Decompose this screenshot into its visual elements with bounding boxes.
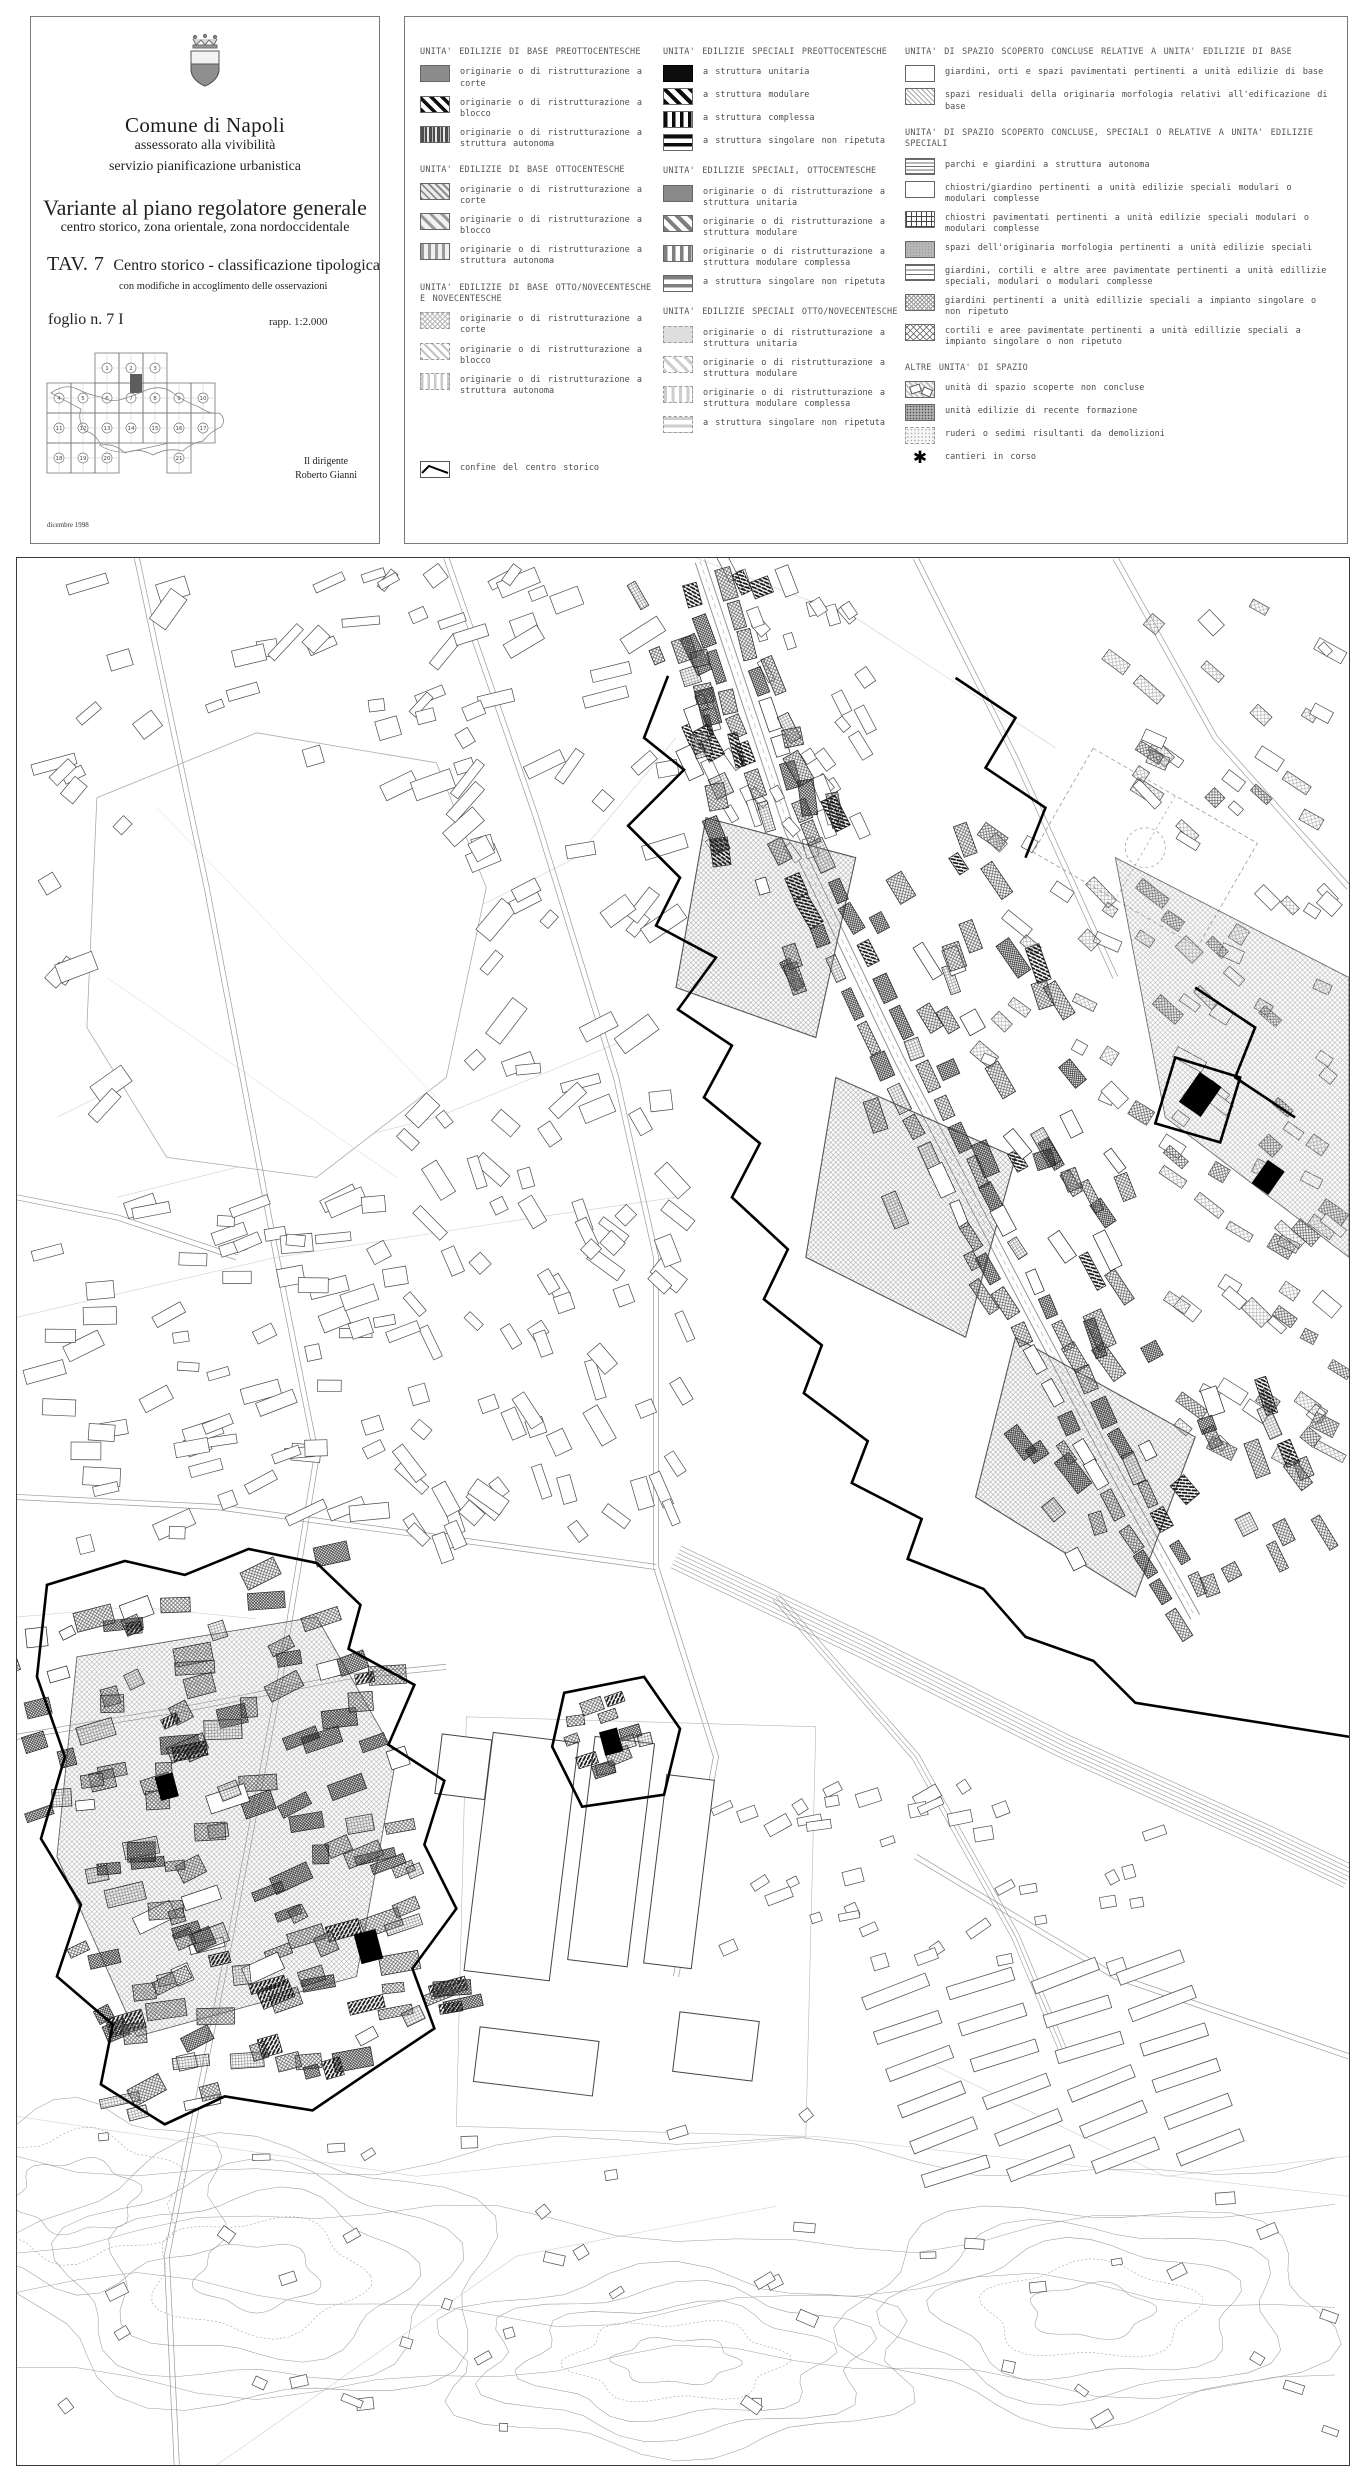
legend-group-title: UNITA' EDILIZIE DI BASE OTTOCENTESCHE xyxy=(420,165,655,176)
dots-light-swatch-icon xyxy=(905,427,935,444)
hlines-wide-swatch-icon xyxy=(905,264,935,281)
vertical-light-swatch-icon xyxy=(420,373,450,390)
legend-item: giardini pertinenti a unità edillizie sp… xyxy=(905,294,1337,318)
legend-group: UNITA' DI SPAZIO SCOPERTO CONCLUSE RELAT… xyxy=(905,47,1337,113)
legend-item-label: giardini, orti e spazi pavimentati perti… xyxy=(945,65,1323,78)
legend-item: a struttura singolare non ripetuta xyxy=(663,134,898,151)
legend-item-label: ruderi o sedimi risultanti da demolizion… xyxy=(945,427,1165,440)
diagonal-fine-gray-swatch-icon xyxy=(420,183,450,200)
map-sketch-swatch-icon xyxy=(905,381,935,398)
hlines-fine-swatch-icon xyxy=(905,158,935,175)
svg-text:21: 21 xyxy=(176,456,183,462)
legend-panel: UNITA' EDILIZIE DI BASE PREOTTOCENTESCHE… xyxy=(404,16,1348,544)
legend-item-label: giardini pertinenti a unità edillizie sp… xyxy=(945,294,1337,318)
legend-item: giardini, orti e spazi pavimentati perti… xyxy=(905,65,1337,82)
legend-item: a struttura complessa xyxy=(663,111,898,128)
legend-item: spazi dell'originaria morfologia pertine… xyxy=(905,241,1337,258)
map-canvas xyxy=(17,558,1349,2465)
svg-text:17: 17 xyxy=(200,426,207,432)
legend-item-label: giardini, cortili e altre aree pavimenta… xyxy=(945,264,1337,288)
legend-item: a struttura modulare xyxy=(663,88,898,105)
legend-item-label: originarie o di ristrutturazione a strut… xyxy=(460,243,655,267)
signature-block: Il dirigente Roberto Gianni xyxy=(295,455,357,483)
asterisk-swatch-icon: ✱ xyxy=(905,450,935,467)
legend-group: UNITA' EDILIZIE DI BASE PREOTTOCENTESCHE… xyxy=(420,47,655,150)
horizontal-black-swatch-icon xyxy=(663,134,693,151)
grid-dense-gray-swatch-icon xyxy=(905,181,935,198)
legend-item-label: unità di spazio scoperte non concluse xyxy=(945,381,1144,394)
legend-item-label: parchi e giardini a struttura autonoma xyxy=(945,158,1149,171)
diagonal-light-swatch-icon xyxy=(420,343,450,360)
legend-item: originarie o di ristrutturazione a strut… xyxy=(420,373,655,397)
legend-item-label: originarie o di ristrutturazione a strut… xyxy=(703,185,898,209)
svg-text:19: 19 xyxy=(80,456,87,462)
signature-role: Il dirigente xyxy=(295,455,357,469)
legend-columns: UNITA' EDILIZIE DI BASE PREOTTOCENTESCHE… xyxy=(405,17,1347,543)
horizontal-gray-swatch-icon xyxy=(663,275,693,292)
legend-item-label: originarie o di ristrutturazione a strut… xyxy=(703,215,898,239)
legend-column-3: UNITA' DI SPAZIO SCOPERTO CONCLUSE RELAT… xyxy=(905,47,1337,473)
scale-label: rapp. 1:2.000 xyxy=(269,316,327,328)
legend-item-label: confine del centro storico xyxy=(460,461,599,474)
legend-item: unità edilizie di recente formazione xyxy=(905,404,1337,421)
svg-text:10: 10 xyxy=(200,396,207,402)
svg-text:15: 15 xyxy=(152,426,159,432)
legend-item: originarie o di ristrutturazione a blocc… xyxy=(420,213,655,237)
map-area xyxy=(16,557,1350,2466)
sheet-note: con modifiche in accoglimento delle osse… xyxy=(119,281,327,292)
legend-item-label: originarie o di ristrutturazione a strut… xyxy=(703,326,898,350)
legend-item-label: originarie o di ristrutturazione a strut… xyxy=(460,126,655,150)
sheet-title: Centro storico - classificazione tipolog… xyxy=(113,257,380,274)
legend-item-label: a struttura singolare non ripetuta xyxy=(703,416,885,429)
legend-item: cortili e aree pavimentate pertinenti a … xyxy=(905,324,1337,348)
legend-group-title: UNITA' EDILIZIE DI BASE OTTO/NOVECENTESC… xyxy=(420,283,655,306)
boundary-line-swatch-icon xyxy=(420,461,450,478)
municipality-title: Comune di Napoli xyxy=(31,113,379,138)
legend-item-label: originarie o di ristrutturazione a strut… xyxy=(703,386,898,410)
diamond-fine-swatch-icon xyxy=(905,294,935,311)
legend-group-title: UNITA' DI SPAZIO SCOPERTO CONCLUSE, SPEC… xyxy=(905,128,1337,151)
legend-item-label: originarie o di ristrutturazione a corte xyxy=(460,65,655,89)
coat-of-arms xyxy=(31,33,379,104)
horizontal-light-dashed-swatch-icon xyxy=(663,416,693,433)
diagonal-fine-light-swatch-icon xyxy=(905,88,935,105)
legend-item-label: originarie o di ristrutturazione a blocc… xyxy=(460,343,655,367)
legend-item: originarie o di ristrutturazione a strut… xyxy=(663,326,898,350)
svg-text:16: 16 xyxy=(176,426,183,432)
legend-item: chiostri pavimentati pertinenti a unità … xyxy=(905,211,1337,235)
legend-item-label: chiostri/giardino pertinenti a unità edi… xyxy=(945,181,1337,205)
legend-item-label: spazi residuali della originaria morfolo… xyxy=(945,88,1337,112)
legend-item-label: spazi dell'originaria morfologia pertine… xyxy=(945,241,1312,254)
legend-item: unità di spazio scoperte non concluse xyxy=(905,381,1337,398)
solid-gray-swatch-icon xyxy=(663,185,693,202)
vertical-gray-bold-swatch-icon xyxy=(663,245,693,262)
diagonal-gray-bold-swatch-icon xyxy=(663,215,693,232)
legend-group: UNITA' EDILIZIE SPECIALI PREOTTOCENTESCH… xyxy=(663,47,898,151)
legend-item-label: chiostri pavimentati pertinenti a unità … xyxy=(945,211,1337,235)
legend-item: a struttura singolare non ripetuta xyxy=(663,275,898,292)
legend-item-label: a struttura singolare non ripetuta xyxy=(703,275,885,288)
crosshatch-dark-gray-swatch-icon xyxy=(420,65,450,82)
legend-item-label: originarie o di ristrutturazione a strut… xyxy=(460,373,655,397)
legend-item-label: a struttura modulare xyxy=(703,88,809,101)
svg-text:18: 18 xyxy=(56,456,63,462)
legend-item: giardini, cortili e altre aree pavimenta… xyxy=(905,264,1337,288)
legend-item: originarie o di ristrutturazione a strut… xyxy=(663,185,898,209)
legend-group: ALTRE UNITA' DI SPAZIOunità di spazio sc… xyxy=(905,363,1337,467)
legend-item-label: originarie o di ristrutturazione a blocc… xyxy=(460,96,655,120)
vertical-dark-gray-swatch-icon xyxy=(420,126,450,143)
legend-group-title: UNITA' EDILIZIE SPECIALI, OTTOCENTESCHE xyxy=(663,166,898,177)
svg-text:13: 13 xyxy=(104,426,111,432)
vertical-black-swatch-icon xyxy=(663,111,693,128)
legend-item-label: a struttura unitaria xyxy=(703,65,809,78)
legend-item: originarie o di ristrutturazione a blocc… xyxy=(420,343,655,367)
sheet-title-row: TAV. 7Centro storico - classificazione t… xyxy=(47,253,380,276)
legend-item-label: originarie o di ristrutturazione a blocc… xyxy=(460,213,655,237)
svg-text:11: 11 xyxy=(56,426,63,432)
legend-item-label: originarie o di ristrutturazione a strut… xyxy=(703,245,898,269)
legend-item: ruderi o sedimi risultanti da demolizion… xyxy=(905,427,1337,444)
legend-item-label: a struttura singolare non ripetuta xyxy=(703,134,885,147)
legend-item: parchi e giardini a struttura autonoma xyxy=(905,158,1337,175)
sheet-number: TAV. 7 xyxy=(47,253,104,275)
legend-item: originarie o di ristrutturazione a corte xyxy=(420,65,655,89)
legend-group-title: UNITA' EDILIZIE DI BASE PREOTTOCENTESCHE xyxy=(420,47,655,58)
legend-item: originarie o di ristrutturazione a blocc… xyxy=(420,96,655,120)
legend-group-title: UNITA' EDILIZIE SPECIALI PREOTTOCENTESCH… xyxy=(663,47,898,58)
legend-group-title: UNITA' DI SPAZIO SCOPERTO CONCLUSE RELAT… xyxy=(905,47,1337,58)
legend-item: originarie o di ristrutturazione a strut… xyxy=(663,215,898,239)
vertical-light-dashed-swatch-icon xyxy=(663,386,693,403)
legend-item: originarie o di ristrutturazione a strut… xyxy=(663,356,898,380)
plan-sheet: { "title_block": { "municipality": "Comu… xyxy=(0,0,1366,2480)
legend-item: spazi residuali della originaria morfolo… xyxy=(905,88,1337,112)
legend-item-label: unità edilizie di recente formazione xyxy=(945,404,1137,417)
legend-group: UNITA' EDILIZIE SPECIALI, OTTOCENTESCHEo… xyxy=(663,166,898,292)
sheet-index-map: 123456789101112131415161718192021 xyxy=(41,345,231,495)
diagonal-black-swatch-icon xyxy=(420,96,450,113)
grid-open-swatch-icon xyxy=(905,211,935,228)
legend-group: UNITA' EDILIZIE DI BASE OTTOCENTESCHEori… xyxy=(420,165,655,268)
plan-subtitle: centro storico, zona orientale, zona nor… xyxy=(31,220,379,236)
legend-item-label: originarie o di ristrutturazione a corte xyxy=(460,183,655,207)
legend-item-label: originarie o di ristrutturazione a strut… xyxy=(703,356,898,380)
legend-group: UNITA' DI SPAZIO SCOPERTO CONCLUSE, SPEC… xyxy=(905,128,1337,348)
legend-column-2: UNITA' EDILIZIE SPECIALI PREOTTOCENTESCH… xyxy=(663,47,898,439)
plan-title: Variante al piano regolatore generale xyxy=(31,195,379,221)
diagonal-gray-swatch-icon xyxy=(420,213,450,230)
svg-text:8: 8 xyxy=(153,396,157,402)
legend-item: chiostri/giardino pertinenti a unità edi… xyxy=(905,181,1337,205)
legend-group-title: UNITA' EDILIZIE SPECIALI OTTO/NOVECENTES… xyxy=(663,307,898,318)
vertical-gray-swatch-icon xyxy=(420,243,450,260)
department-label: assessorato alla vivibilità xyxy=(31,138,379,154)
legend-item: originarie o di ristrutturazione a corte xyxy=(420,312,655,336)
legend-item: originarie o di ristrutturazione a strut… xyxy=(663,386,898,410)
crosshatch-light-swatch-icon xyxy=(420,312,450,329)
legend-item: ✱cantieri in corso xyxy=(905,450,1337,467)
svg-text:14: 14 xyxy=(128,426,135,432)
diagonal-black-bold-swatch-icon xyxy=(663,88,693,105)
svg-text:1: 1 xyxy=(105,366,109,372)
legend-item: originarie o di ristrutturazione a strut… xyxy=(663,245,898,269)
legend-item: originarie o di ristrutturazione a corte xyxy=(420,183,655,207)
date-label: dicembre 1998 xyxy=(47,521,89,529)
legend-item-label: cortili e aree pavimentate pertinenti a … xyxy=(945,324,1337,348)
legend-item: a struttura unitaria xyxy=(663,65,898,82)
highlighted-sheet-cell xyxy=(130,374,142,393)
legend-group: UNITA' EDILIZIE DI BASE OTTO/NOVECENTESC… xyxy=(420,283,655,397)
legend-item: originarie o di ristrutturazione a strut… xyxy=(420,243,655,267)
texture-gray-swatch-icon xyxy=(905,241,935,258)
legend-item-label: originarie o di ristrutturazione a corte xyxy=(460,312,655,336)
diagonal-light-dashed-swatch-icon xyxy=(663,356,693,373)
svg-text:20: 20 xyxy=(104,456,111,462)
svg-text:3: 3 xyxy=(153,366,157,372)
legend-group: UNITA' EDILIZIE SPECIALI OTTO/NOVECENTES… xyxy=(663,307,898,433)
folio-label: foglio n. 7 I xyxy=(48,311,124,329)
grid-fine-swatch-icon xyxy=(905,65,935,82)
svg-text:2: 2 xyxy=(129,366,133,372)
svg-text:5: 5 xyxy=(81,396,85,402)
signature-name: Roberto Gianni xyxy=(295,469,357,483)
title-panel: Comune di Napoli assessorato alla vivibi… xyxy=(30,16,380,544)
diamond-open-swatch-icon xyxy=(905,324,935,341)
solid-black-swatch-icon xyxy=(663,65,693,82)
legend-item: originarie o di ristrutturazione a strut… xyxy=(420,126,655,150)
office-label: servizio pianificazione urbanistica xyxy=(31,159,379,175)
legend-item: confine del centro storico xyxy=(420,461,655,478)
solid-light-swatch-icon xyxy=(663,326,693,343)
legend-item-label: a struttura complessa xyxy=(703,111,814,124)
legend-item-label: cantieri in corso xyxy=(945,450,1036,463)
legend-column-1: UNITA' EDILIZIE DI BASE PREOTTOCENTESCHE… xyxy=(420,47,655,484)
dots-dense-gray-swatch-icon xyxy=(905,404,935,421)
legend-item: a struttura singolare non ripetuta xyxy=(663,416,898,433)
legend-group-title: ALTRE UNITA' DI SPAZIO xyxy=(905,363,1337,374)
